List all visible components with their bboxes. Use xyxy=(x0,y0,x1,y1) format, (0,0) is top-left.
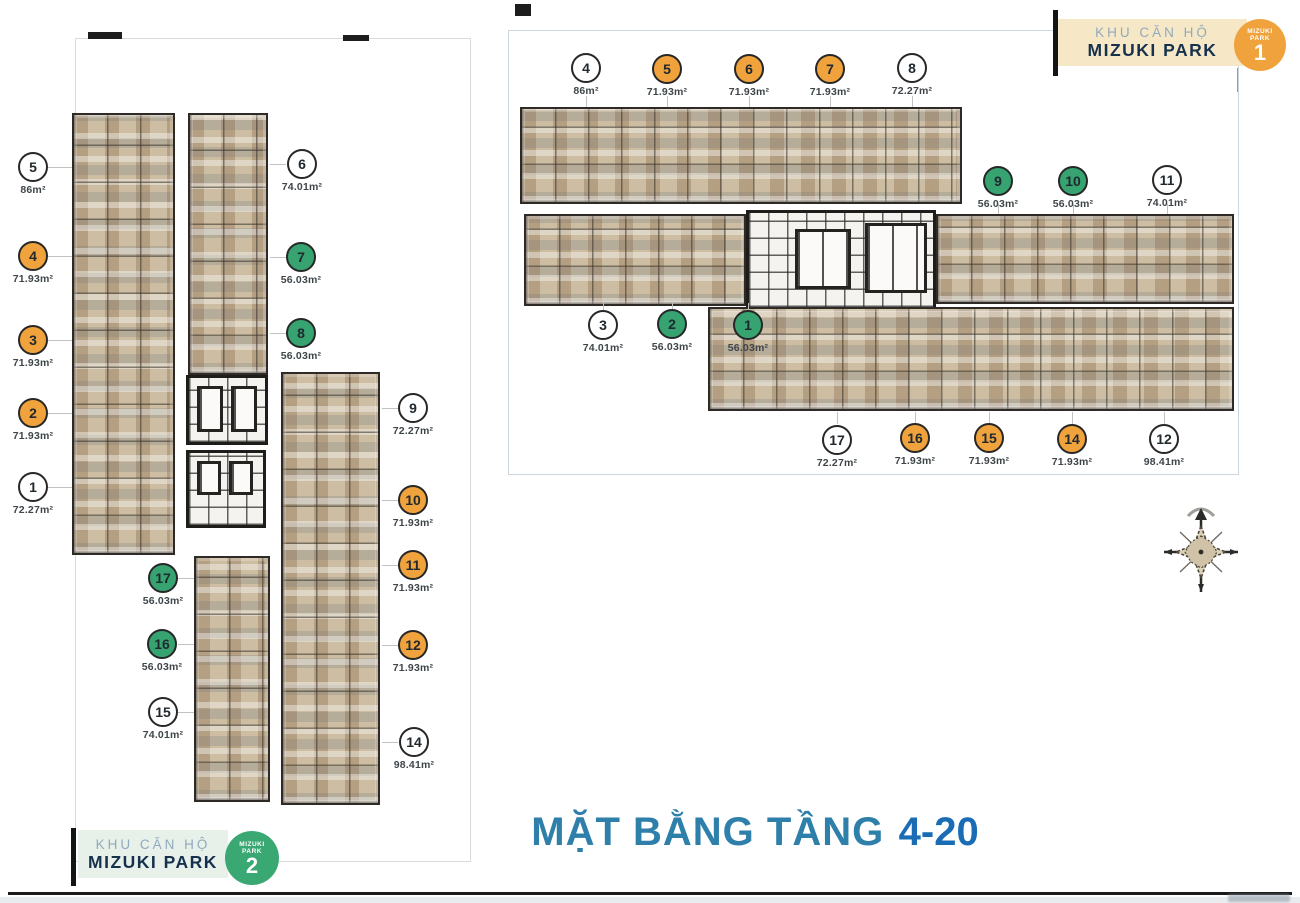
watermark xyxy=(1228,894,1290,902)
leader-line xyxy=(837,412,838,424)
tower-2-badge[interactable]: MIZUKI PARK 2 xyxy=(225,831,279,885)
unit-marker-mp1-6[interactable]: 671.93m² xyxy=(717,54,781,98)
unit-marker-mp1-4[interactable]: 486m² xyxy=(554,53,618,97)
unit-area: 74.01m² xyxy=(1135,197,1199,209)
mp2-wing-south xyxy=(194,556,270,802)
unit-area: 71.93m² xyxy=(1,430,65,442)
mp2-core-lifts xyxy=(186,450,266,528)
unit-area: 74.01m² xyxy=(131,729,195,741)
tower-1-badge[interactable]: MIZUKI PARK 1 xyxy=(1234,19,1286,71)
unit-number: 10 xyxy=(398,485,428,515)
unit-number: 2 xyxy=(657,309,687,339)
mp2-wing-north xyxy=(188,113,268,375)
page-title: MẶT BẰNG TẦNG 4-20 xyxy=(520,810,990,855)
leader-line xyxy=(586,96,587,107)
elevator-shaft xyxy=(197,386,223,432)
unit-marker-mp1-7[interactable]: 771.93m² xyxy=(798,54,862,98)
unit-number: 14 xyxy=(1057,424,1087,454)
unit-number: 5 xyxy=(18,152,48,182)
unit-number: 17 xyxy=(148,563,178,593)
unit-marker-mp2-12[interactable]: 1271.93m² xyxy=(381,630,445,674)
unit-marker-mp2-11[interactable]: 1171.93m² xyxy=(381,550,445,594)
tower-badge-text: MIZUKI xyxy=(1247,28,1272,35)
plan-fragment xyxy=(515,4,531,16)
unit-marker-mp1-8[interactable]: 872.27m² xyxy=(880,53,944,97)
unit-number: 17 xyxy=(822,425,852,455)
project-name: MIZUKI PARK xyxy=(88,852,218,872)
unit-area: 72.27m² xyxy=(381,425,445,437)
unit-marker-mp1-10[interactable]: 1056.03m² xyxy=(1041,166,1105,210)
unit-area: 72.27m² xyxy=(805,457,869,469)
unit-area: 71.93m² xyxy=(635,86,699,98)
unit-area: 56.03m² xyxy=(716,342,780,354)
title-text: MẶT BẰNG TẦNG xyxy=(531,810,884,854)
tower-number: 1 xyxy=(1254,42,1266,63)
unit-marker-mp1-1[interactable]: 156.03m² xyxy=(716,310,780,354)
unit-number: 2 xyxy=(18,398,48,428)
unit-number: 8 xyxy=(897,53,927,83)
unit-marker-mp2-15[interactable]: 1574.01m² xyxy=(131,697,195,741)
unit-area: 56.03m² xyxy=(640,341,704,353)
unit-number: 6 xyxy=(287,149,317,179)
leader-line xyxy=(1072,412,1073,424)
unit-area: 98.41m² xyxy=(382,759,446,771)
plan-fragment xyxy=(343,35,369,41)
leader-line xyxy=(1164,412,1165,424)
unit-area: 56.03m² xyxy=(269,350,333,362)
mp1-band-bottom xyxy=(708,307,1234,411)
unit-area: 71.93m² xyxy=(381,662,445,674)
legend-mizuki-park-2: KHU CĂN HỘ MIZUKI PARK xyxy=(78,830,228,878)
unit-area: 71.93m² xyxy=(957,455,1021,467)
unit-marker-mp2-7[interactable]: 756.03m² xyxy=(269,242,333,286)
project-label: KHU CĂN HỘ xyxy=(96,837,211,852)
tower-badge-text: MIZUKI xyxy=(239,841,264,848)
unit-marker-mp1-14[interactable]: 1471.93m² xyxy=(1040,424,1104,468)
badge-divider-bar xyxy=(71,828,76,886)
unit-area: 86m² xyxy=(1,184,65,196)
unit-number: 4 xyxy=(18,241,48,271)
unit-number: 11 xyxy=(1152,165,1182,195)
unit-marker-mp2-2[interactable]: 271.93m² xyxy=(1,398,65,442)
unit-number: 3 xyxy=(588,310,618,340)
project-name: MIZUKI PARK xyxy=(1088,40,1218,60)
unit-area: 71.93m² xyxy=(1040,456,1104,468)
unit-marker-mp1-5[interactable]: 571.93m² xyxy=(635,54,699,98)
unit-area: 71.93m² xyxy=(883,455,947,467)
unit-number: 7 xyxy=(815,54,845,84)
mp1-band-top xyxy=(520,107,962,204)
legend-mizuki-park-1: KHU CĂN HỘ MIZUKI PARK xyxy=(1058,19,1247,66)
unit-number: 16 xyxy=(900,423,930,453)
unit-number: 12 xyxy=(1149,424,1179,454)
unit-area: 71.93m² xyxy=(1,273,65,285)
unit-area: 56.03m² xyxy=(130,661,194,673)
unit-marker-mp2-14[interactable]: 1498.41m² xyxy=(382,727,446,771)
unit-marker-mp1-2[interactable]: 256.03m² xyxy=(640,309,704,353)
unit-number: 12 xyxy=(398,630,428,660)
unit-marker-mp2-1[interactable]: 172.27m² xyxy=(1,472,65,516)
unit-number: 6 xyxy=(734,54,764,84)
unit-number: 7 xyxy=(286,242,316,272)
unit-number: 15 xyxy=(974,423,1004,453)
unit-area: 74.01m² xyxy=(270,181,334,193)
plan-fragment xyxy=(88,32,122,39)
unit-marker-mp1-11[interactable]: 1174.01m² xyxy=(1135,165,1199,209)
elevator-shaft xyxy=(229,461,253,495)
mp1-core xyxy=(746,210,936,310)
unit-marker-mp2-3[interactable]: 371.93m² xyxy=(1,325,65,369)
unit-number: 5 xyxy=(652,54,682,84)
unit-number: 1 xyxy=(733,310,763,340)
bottom-strip xyxy=(0,897,1300,903)
unit-area: 72.27m² xyxy=(880,85,944,97)
unit-number: 4 xyxy=(571,53,601,83)
compass-icon xyxy=(1160,500,1242,598)
elevator-bank xyxy=(795,229,851,289)
unit-area: 72.27m² xyxy=(1,504,65,516)
unit-number: 14 xyxy=(399,727,429,757)
leader-line xyxy=(912,96,913,107)
unit-area: 56.03m² xyxy=(1041,198,1105,210)
unit-marker-mp1-12[interactable]: 1298.41m² xyxy=(1132,424,1196,468)
unit-marker-mp1-16[interactable]: 1671.93m² xyxy=(883,423,947,467)
mp2-core-stairs xyxy=(186,375,268,445)
mp2-wing-east xyxy=(281,372,380,805)
unit-area: 71.93m² xyxy=(381,582,445,594)
unit-number: 10 xyxy=(1058,166,1088,196)
unit-marker-mp1-15[interactable]: 1571.93m² xyxy=(957,423,1021,467)
unit-marker-mp2-4[interactable]: 471.93m² xyxy=(1,241,65,285)
unit-marker-mp2-16[interactable]: 1656.03m² xyxy=(130,629,194,673)
project-label: KHU CĂN HỘ xyxy=(1095,25,1210,40)
unit-marker-mp2-9[interactable]: 972.27m² xyxy=(381,393,445,437)
unit-number: 1 xyxy=(18,472,48,502)
bottom-rule xyxy=(8,892,1292,895)
mp1-band-mid-east xyxy=(936,214,1234,304)
unit-area: 71.93m² xyxy=(717,86,781,98)
unit-number: 9 xyxy=(398,393,428,423)
unit-area: 56.03m² xyxy=(131,595,195,607)
badge-connector-line xyxy=(1237,68,1238,92)
unit-area: 98.41m² xyxy=(1132,456,1196,468)
unit-marker-mp2-17[interactable]: 1756.03m² xyxy=(131,563,195,607)
elevator-bank xyxy=(865,223,927,293)
floorplan-page: 586m² 471.93m² 371.93m² 271.93m² 172.27m… xyxy=(0,0,1300,903)
unit-area: 71.93m² xyxy=(1,357,65,369)
unit-marker-mp1-9[interactable]: 956.03m² xyxy=(966,166,1030,210)
unit-marker-mp1-17[interactable]: 1772.27m² xyxy=(805,425,869,469)
elevator-shaft xyxy=(231,386,257,432)
unit-area: 74.01m² xyxy=(571,342,635,354)
unit-area: 56.03m² xyxy=(966,198,1030,210)
unit-marker-mp2-8[interactable]: 856.03m² xyxy=(269,318,333,362)
unit-number: 16 xyxy=(147,629,177,659)
unit-number: 15 xyxy=(148,697,178,727)
unit-area: 86m² xyxy=(554,85,618,97)
title-floor-range: 4-20 xyxy=(899,810,979,854)
unit-marker-mp2-6[interactable]: 674.01m² xyxy=(270,149,334,193)
unit-marker-mp1-3[interactable]: 374.01m² xyxy=(571,310,635,354)
unit-area: 71.93m² xyxy=(381,517,445,529)
unit-number: 9 xyxy=(983,166,1013,196)
unit-area: 56.03m² xyxy=(269,274,333,286)
unit-number: 11 xyxy=(398,550,428,580)
elevator-shaft xyxy=(197,461,221,495)
mp2-wing-west xyxy=(72,113,175,555)
unit-marker-mp2-5[interactable]: 586m² xyxy=(1,152,65,196)
unit-area: 71.93m² xyxy=(798,86,862,98)
unit-marker-mp2-10[interactable]: 1071.93m² xyxy=(381,485,445,529)
mp1-band-mid-west xyxy=(524,214,746,306)
unit-number: 3 xyxy=(18,325,48,355)
unit-number: 8 xyxy=(286,318,316,348)
tower-number: 2 xyxy=(246,855,258,876)
